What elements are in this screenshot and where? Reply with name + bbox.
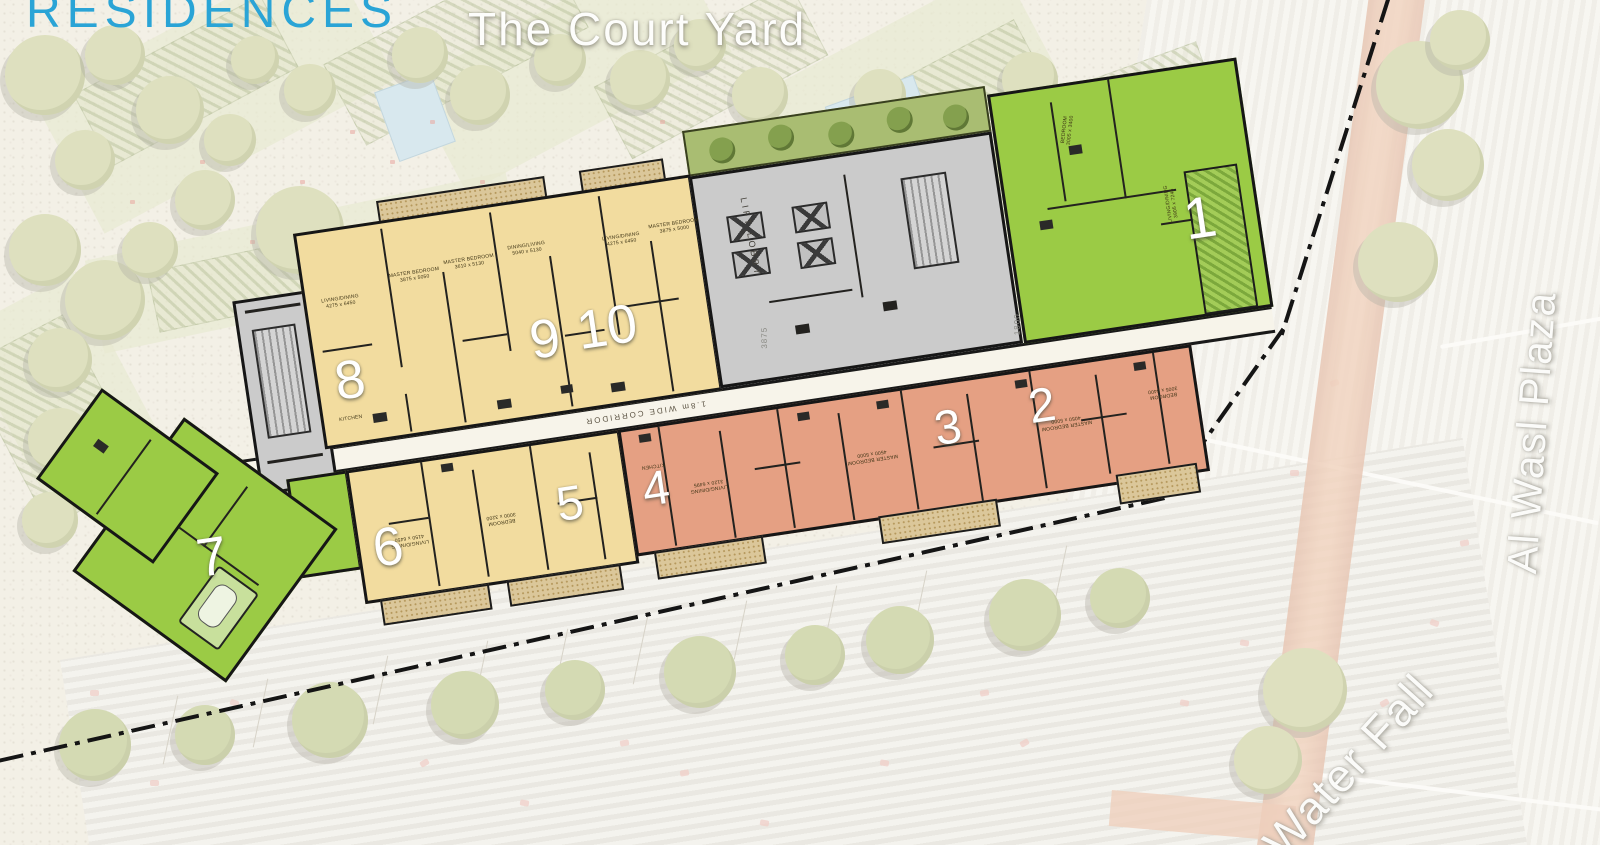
- unit-number-10: 10: [573, 292, 642, 362]
- site-plan: LIFT LOBBY 1.8m WIDE CORRIDOR 3875 1800 …: [0, 0, 1600, 845]
- dimension-1800: 1800: [1013, 313, 1022, 335]
- brand-title: RESIDENCES: [26, 0, 398, 39]
- courtyard-label: The Court Yard: [468, 2, 806, 56]
- dimension-3875: 3875: [760, 327, 769, 349]
- central-core: [689, 131, 1023, 388]
